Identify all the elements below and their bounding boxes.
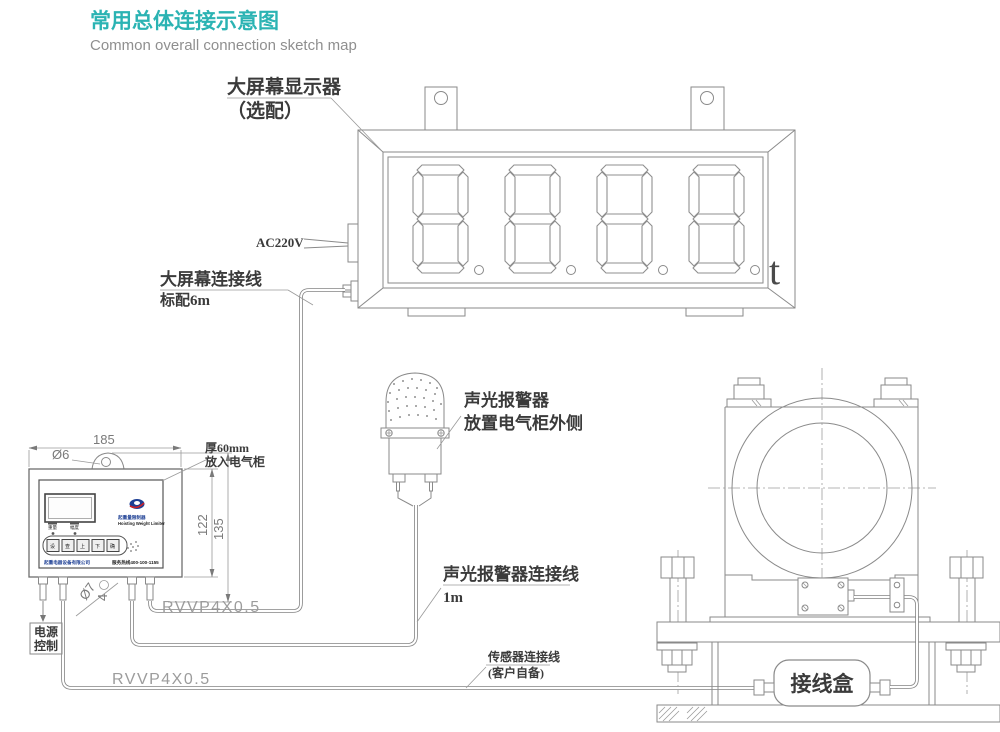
ac-power-label: AC220V (256, 235, 304, 250)
panel-hotline: 服务热线400-100-1155 (112, 559, 159, 566)
alarm-callout: 声光报警器 放置电气柜外侧 (437, 390, 583, 449)
diagram-page: 常用总体连接示意图 Common overall connection sket… (0, 0, 1000, 732)
indicator2-led (74, 532, 77, 535)
sensor-cable-note: (客户自备) (488, 665, 544, 680)
sound-light-alarm (381, 373, 449, 506)
sensor-cable-label: 传感器连接线 (487, 649, 560, 664)
panel-button-4-label: 下 (95, 544, 100, 550)
indicator1-led (52, 532, 55, 535)
panel-button-2-label: 查 (65, 543, 70, 550)
display-cable-label: 大屏幕连接线 (160, 269, 262, 289)
cable-spec-display: RVVP4X0.5 (162, 599, 261, 616)
dim-total-height: 135 (211, 518, 226, 540)
page-subtitle: Common overall connection sketch map (90, 37, 357, 54)
dim-panel-height: 122 (195, 514, 210, 536)
alarm-cable-callout: 声光报警器连接线 1m (417, 564, 579, 622)
display-cable-length: 标配6m (159, 291, 211, 309)
panel-model-en: Hoisting Weight Limiter (118, 521, 165, 526)
display-cable-callout: 大屏幕连接线 标配6m (159, 269, 313, 309)
dim-width: 185 (93, 432, 115, 447)
unit-t-label: t (769, 248, 780, 293)
panel-company: 起重电器设备有限公司 (43, 559, 90, 566)
power-ctrl-line1: 电源 (34, 624, 58, 639)
brand-logo-icon (130, 499, 145, 509)
weight-limiter-controller: 重量 幅度 起重量限制器 Hoisting Weight Limiter 设 查… (29, 453, 182, 600)
cabinet-note-label: 放入电气柜 (204, 454, 265, 469)
alarm-name-label: 声光报警器 (463, 390, 550, 410)
panel-buttons[interactable]: 设 查 上 下 确 (47, 540, 119, 552)
cable-spec-sensor: RVVP4X0.5 (112, 671, 211, 688)
dim-hole: Ø6 (52, 447, 69, 462)
sensor-cable-callout: 传感器连接线 (客户自备) (466, 649, 560, 688)
dim-gland-count: 4 (95, 594, 110, 601)
panel-button-3-label: 上 (80, 543, 85, 550)
panel-model-cn: 起重量限制器 (117, 514, 146, 521)
indicator2-label: 幅度 (70, 524, 79, 531)
display-optional-label: （选配） (227, 99, 303, 122)
junction-box-label: 接线盒 (791, 672, 855, 696)
power-ctrl-line2: 控制 (34, 638, 58, 653)
indicator1-label: 重量 (48, 524, 57, 531)
lcd-screen (45, 494, 95, 522)
alarm-cable-length: 1m (443, 590, 464, 606)
alarm-place-label: 放置电气柜外侧 (463, 413, 583, 433)
alarm-cable-label: 声光报警器连接线 (442, 564, 579, 584)
page-title: 常用总体连接示意图 (90, 9, 279, 33)
big-screen-display: t (304, 87, 795, 316)
panel-button-5-label: 确 (110, 543, 115, 550)
cable-clamp (890, 578, 904, 612)
thickness-label: 厚60mm (205, 441, 249, 455)
power-control-callout: 电源 控制 (30, 601, 62, 654)
panel-button-1-label: 设 (50, 543, 55, 550)
junction-box: 接线盒 (754, 660, 890, 706)
display-name-label: 大屏幕显示器 (227, 75, 342, 98)
connection-diagram: 常用总体连接示意图 Common overall connection sket… (0, 0, 1000, 732)
